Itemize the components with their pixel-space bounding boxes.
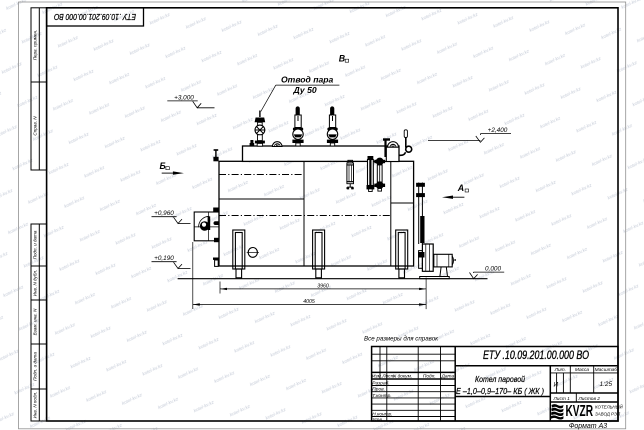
svg-text:+2,400: +2,400 xyxy=(488,127,508,134)
svg-text:Листов 2: Листов 2 xyxy=(578,396,601,402)
svg-text:3960: 3960 xyxy=(317,284,329,290)
svg-text:Все размеры для справок: Все размеры для справок xyxy=(364,336,439,343)
svg-text:+0,960: +0,960 xyxy=(154,210,174,217)
svg-text:Формат А3: Формат А3 xyxy=(569,423,607,430)
svg-text:Отвод пара: Отвод пара xyxy=(281,75,334,85)
svg-text:ЕТУ .10.09.201.00.000 ВО: ЕТУ .10.09.201.00.000 ВО xyxy=(54,12,136,22)
svg-text:Лист 1: Лист 1 xyxy=(553,396,571,402)
svg-text:Инв. N дубл.: Инв. N дубл. xyxy=(33,270,38,297)
svg-text:N докум.: N докум. xyxy=(393,374,412,380)
svg-text:Котел паровой: Котел паровой xyxy=(475,375,525,384)
svg-text:Масштаб: Масштаб xyxy=(595,367,618,373)
svg-text:Перв. примен.: Перв. примен. xyxy=(33,30,38,61)
svg-text:Т.контр.: Т.контр. xyxy=(372,393,391,399)
svg-text:Изм.Лист: Изм.Лист xyxy=(372,374,395,380)
svg-text:ЕТУ .10.09.201.00.000 ВО: ЕТУ .10.09.201.00.000 ВО xyxy=(483,350,589,362)
svg-text:В: В xyxy=(339,54,346,64)
svg-text:Разраб.: Разраб. xyxy=(372,381,389,387)
svg-text:Пров.: Пров. xyxy=(372,387,385,393)
svg-text:Ду 50: Ду 50 xyxy=(293,85,317,95)
svg-text:А: А xyxy=(457,183,464,193)
svg-text:Б: Б xyxy=(160,161,166,171)
svg-text:Взам. инв. N: Взам. инв. N xyxy=(33,308,38,335)
svg-text:Утв.: Утв. xyxy=(372,417,383,423)
svg-text:Подп. и дата: Подп. и дата xyxy=(33,230,38,259)
svg-text:+0,190: +0,190 xyxy=(154,255,174,262)
svg-text:Инв. N подл.: Инв. N подл. xyxy=(33,392,38,419)
svg-text:Н.контр.: Н.контр. xyxy=(372,412,392,418)
svg-text:1:25: 1:25 xyxy=(599,381,612,388)
svg-text:И: И xyxy=(554,382,559,389)
svg-text:Дата: Дата xyxy=(440,374,454,380)
svg-text:Справ. N: Справ. N xyxy=(33,116,38,136)
svg-text:Масса: Масса xyxy=(575,367,590,373)
svg-text:KVZR: KVZR xyxy=(566,403,594,420)
svg-text:КОТЕЛЬНЫЙ: КОТЕЛЬНЫЙ xyxy=(595,405,623,410)
svg-text:Е –1,0–0,9–170– КБ ( ЖК ): Е –1,0–0,9–170– КБ ( ЖК ) xyxy=(456,387,544,396)
svg-text:Лит.: Лит. xyxy=(554,367,566,373)
svg-text:Подп.: Подп. xyxy=(423,374,436,380)
svg-text:Подп. и дата: Подп. и дата xyxy=(33,352,38,381)
svg-text:4005: 4005 xyxy=(303,299,315,305)
svg-text:ЗАВОД РЭП: ЗАВОД РЭП xyxy=(595,412,621,417)
svg-text:0,000: 0,000 xyxy=(485,265,501,272)
svg-text:+3,000: +3,000 xyxy=(174,94,194,101)
